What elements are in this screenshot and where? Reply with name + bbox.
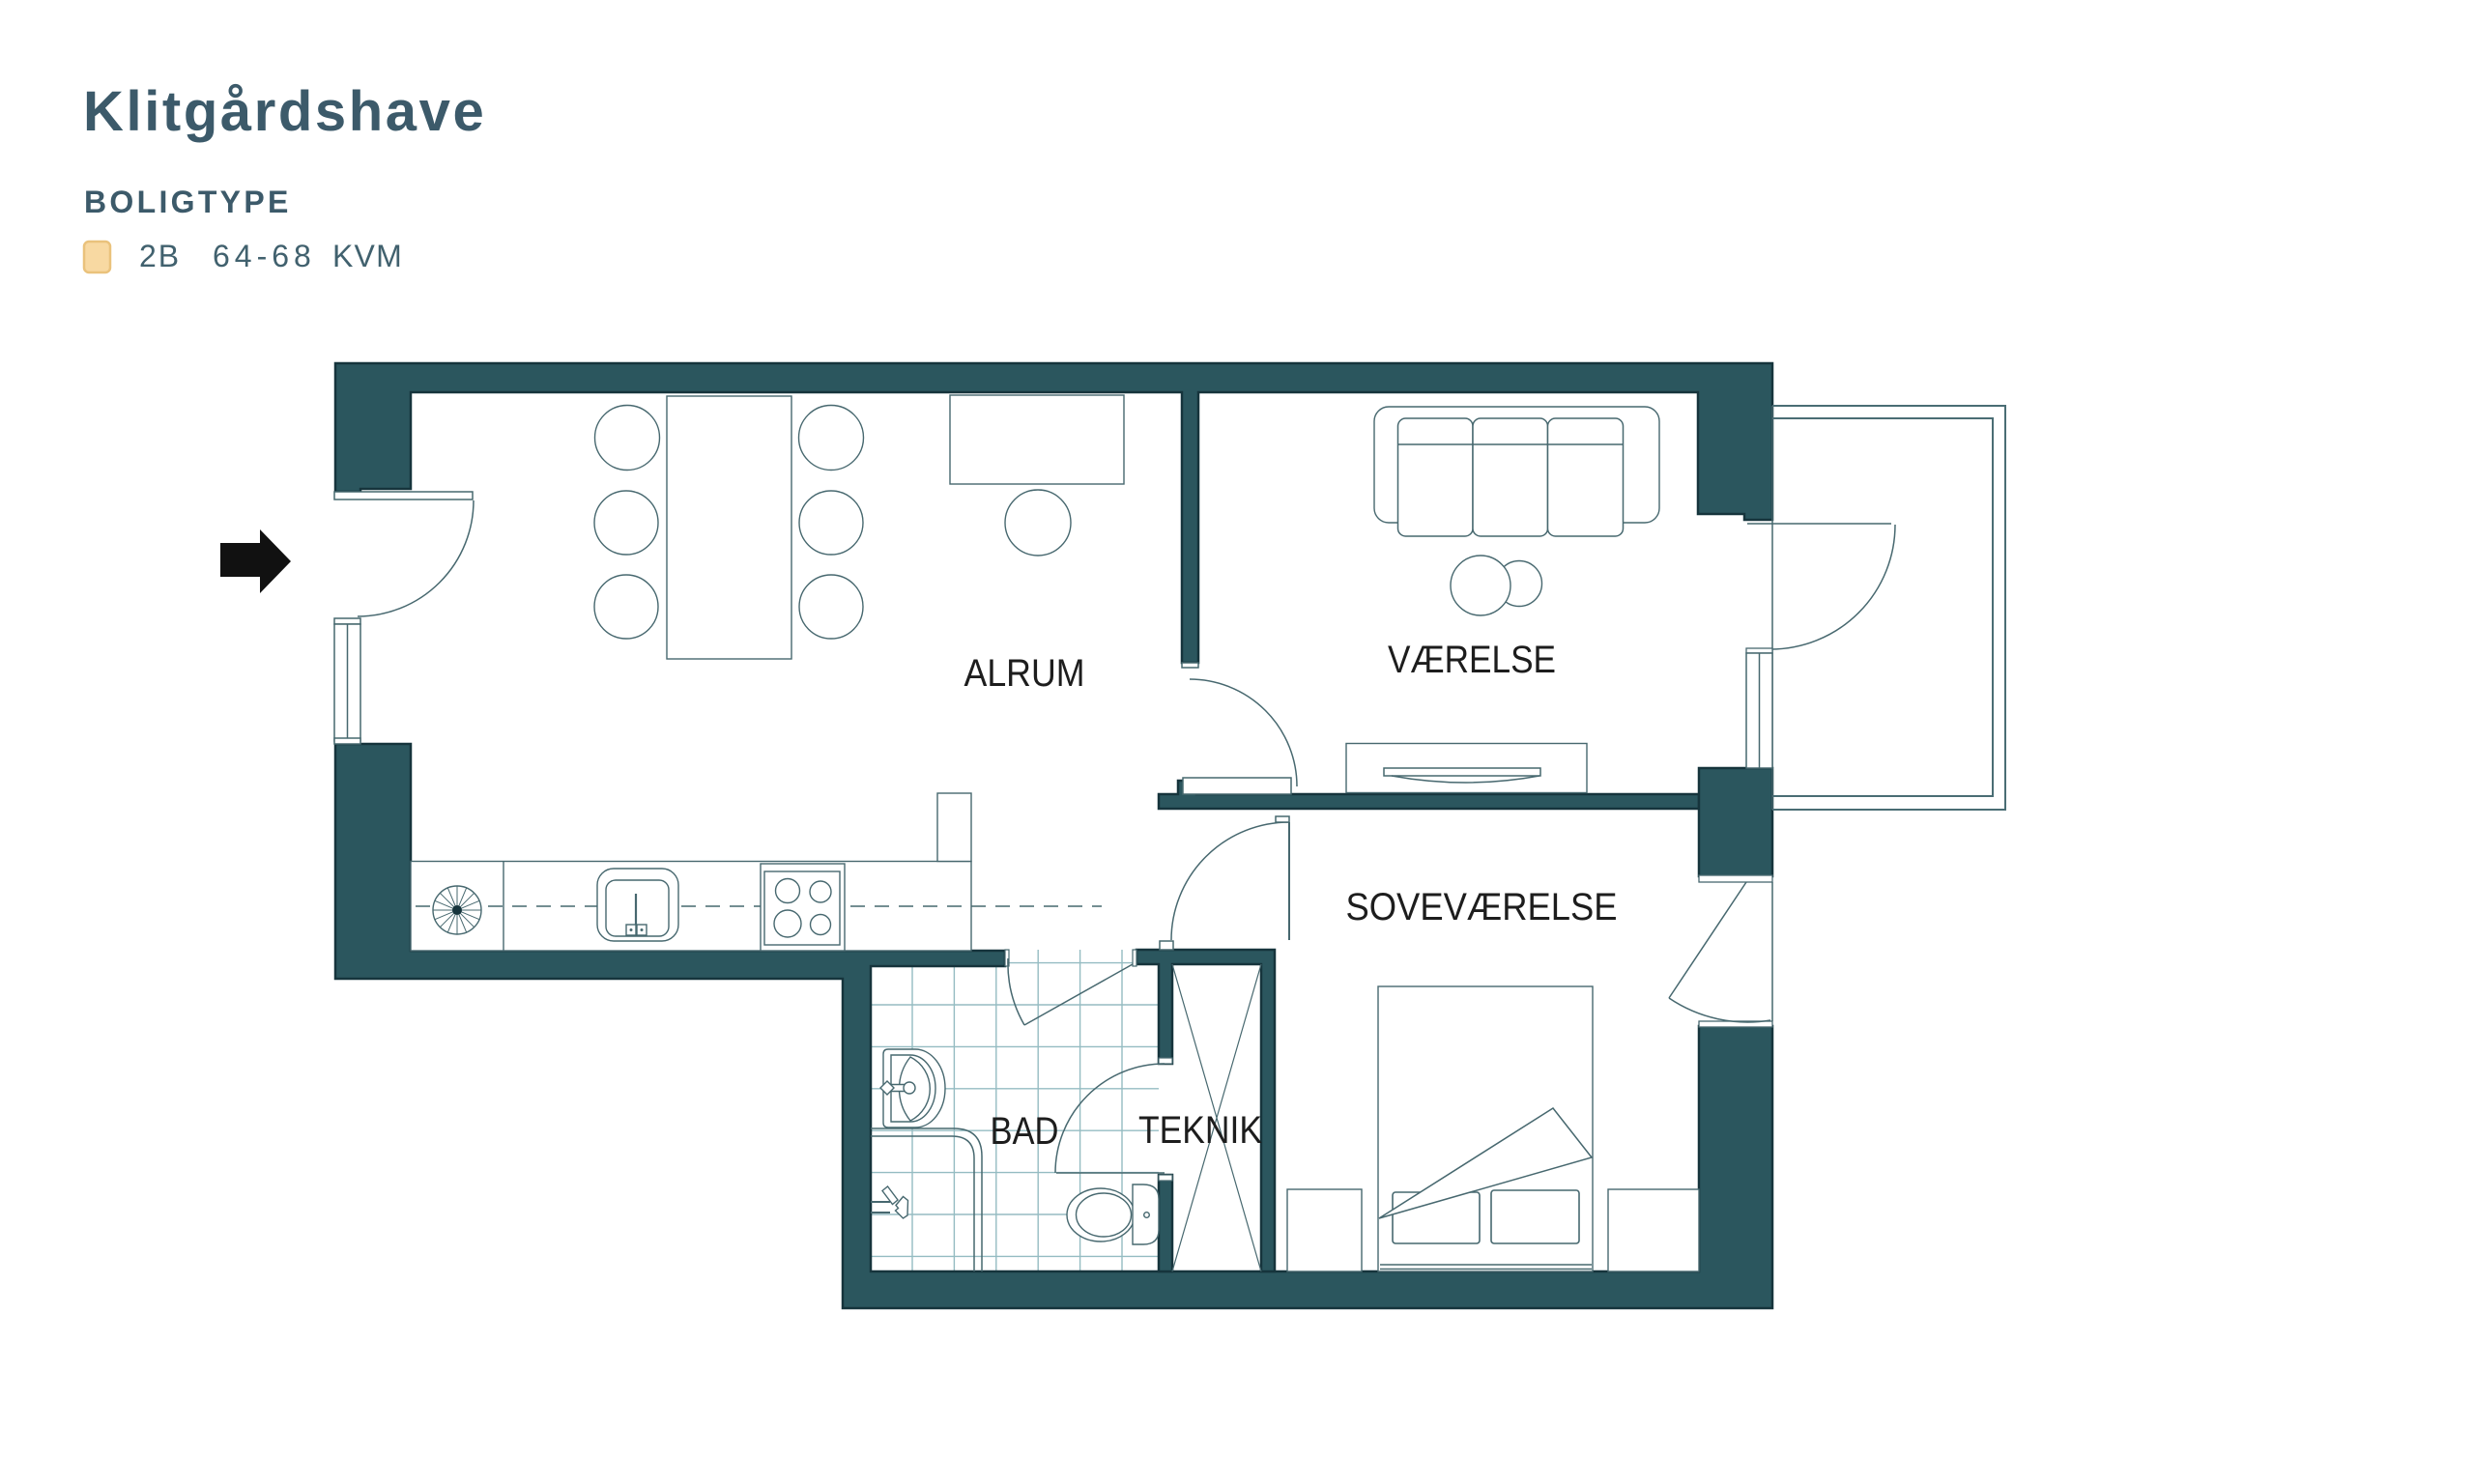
svg-text:Klitgårdshave: Klitgårdshave <box>83 80 486 143</box>
svg-text:BAD: BAD <box>991 1110 1059 1153</box>
svg-text:BOLIGTYPE: BOLIGTYPE <box>84 185 292 219</box>
svg-text:KVM: KVM <box>332 239 403 273</box>
svg-text:VÆRELSE: VÆRELSE <box>1388 639 1556 681</box>
svg-text:TEKNIK: TEKNIK <box>1138 1109 1262 1152</box>
svg-text:2B: 2B <box>139 239 181 273</box>
svg-text:SOVEVÆRELSE: SOVEVÆRELSE <box>1346 886 1618 928</box>
svg-text:64-68: 64-68 <box>213 239 316 273</box>
svg-text:ALRUM: ALRUM <box>964 652 1085 695</box>
